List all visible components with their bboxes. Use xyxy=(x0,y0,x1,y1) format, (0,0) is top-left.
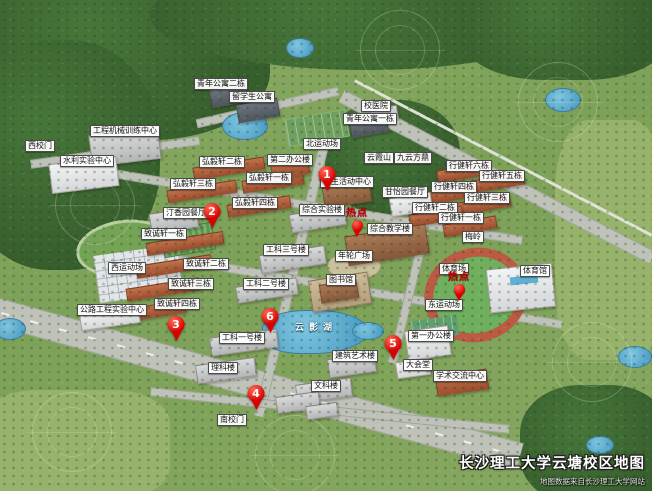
building-label: 第一办公楼 xyxy=(408,330,454,342)
marker-tail-icon xyxy=(251,400,261,410)
building-label: 致诚轩四栋 xyxy=(154,298,200,310)
building-label: 云霞山 xyxy=(364,152,394,164)
lake-label: 云影湖 xyxy=(293,323,339,333)
map-marker-6[interactable]: 6 xyxy=(262,308,279,333)
hotspot-pin-tail-icon xyxy=(455,294,463,301)
watermark-circle xyxy=(255,415,335,491)
building-label: 年轮广场 xyxy=(335,250,373,262)
map-art xyxy=(618,346,652,368)
building-label: 理科楼 xyxy=(208,362,238,374)
building-label: 甘怡园餐厅 xyxy=(382,186,428,198)
map-art xyxy=(545,88,581,112)
building-label: 文科楼 xyxy=(311,380,341,392)
map-art xyxy=(460,0,652,80)
map-marker-5[interactable]: 5 xyxy=(385,335,402,360)
hotspot-label: 热点 xyxy=(346,208,368,219)
marker-tail-icon xyxy=(388,350,398,360)
title-block: 长沙理工大学云塘校区地图 地图数据来自长沙理工大学网站 xyxy=(459,452,645,487)
campus-map: 西校门工程机械训练中心水利实验中心青年公寓二栋留学生公寓校医院青年公寓一栋北运动… xyxy=(0,0,652,491)
building-label: 行健轩一栋 xyxy=(438,212,484,224)
building-label: 弘毅轩三栋 xyxy=(170,178,216,190)
building-label: 体育馆 xyxy=(520,265,550,277)
building-label: 致诚轩三栋 xyxy=(168,278,214,290)
building-label: 汀香园餐厅 xyxy=(163,207,209,219)
marker-tail-icon xyxy=(171,331,181,341)
map-art xyxy=(0,390,170,491)
building-label: 留学生公寓 xyxy=(229,91,275,103)
building-label: 弘毅轩一栋 xyxy=(246,172,292,184)
building-label: 青年公寓一栋 xyxy=(343,113,397,125)
map-title: 长沙理工大学云塘校区地图 xyxy=(459,452,645,473)
building-label: 工程机械训练中心 xyxy=(90,125,160,137)
map-attribution: 地图数据来自长沙理工大学网站 xyxy=(459,476,645,487)
building-label: 致诚轩一栋 xyxy=(141,228,187,240)
hotspot-marker[interactable]: 热点 xyxy=(448,272,470,301)
map-marker-3[interactable]: 3 xyxy=(168,316,185,341)
building-label: 南校门 xyxy=(217,414,247,426)
building-label: 图书馆 xyxy=(326,274,356,286)
building-label: 公路工程实验中心 xyxy=(77,304,147,316)
building-label: 青年公寓二栋 xyxy=(194,78,248,90)
map-marker-2[interactable]: 2 xyxy=(204,203,221,228)
map-art xyxy=(352,322,384,340)
building-label: 行健轩三栋 xyxy=(464,192,510,204)
building-label: 西校门 xyxy=(25,140,55,152)
marker-tail-icon xyxy=(207,218,217,228)
map-marker-4[interactable]: 4 xyxy=(248,385,265,410)
building-label: 北运动场 xyxy=(303,138,341,150)
building-label: 建筑艺术楼 xyxy=(332,350,378,362)
marker-tail-icon xyxy=(322,181,332,191)
building-label: 九云方鼎 xyxy=(394,152,432,164)
building-label: 弘毅轩二栋 xyxy=(199,156,245,168)
building-label: 工科二号楼 xyxy=(243,278,289,290)
building-label: 水利实验中心 xyxy=(60,155,114,167)
hotspot-pin-tail-icon xyxy=(353,230,361,237)
building-label: 致诚轩二栋 xyxy=(183,258,229,270)
hotspot-marker[interactable]: 热点 xyxy=(346,208,368,237)
map-art xyxy=(286,38,314,58)
building-label: 弘毅轩四栋 xyxy=(232,197,278,209)
hotspot-label: 热点 xyxy=(448,272,470,283)
building-label: 综合教学楼 xyxy=(367,223,413,235)
map-marker-1[interactable]: 1 xyxy=(319,166,336,191)
building-label: 大会堂 xyxy=(403,359,433,371)
building-label: 梅岭 xyxy=(462,231,484,243)
building-label: 校医院 xyxy=(361,100,391,112)
building-label: 工科三号楼 xyxy=(263,244,309,256)
marker-tail-icon xyxy=(265,323,275,333)
building-label: 西运动场 xyxy=(108,262,146,274)
building-label: 第二办公楼 xyxy=(267,154,313,166)
building-label: 工科一号楼 xyxy=(219,332,265,344)
map-art xyxy=(0,318,26,340)
building-label: 学术交流中心 xyxy=(433,370,487,382)
building-label: 综合实验楼 xyxy=(299,204,345,216)
building-label: 行健轩五栋 xyxy=(479,170,525,182)
